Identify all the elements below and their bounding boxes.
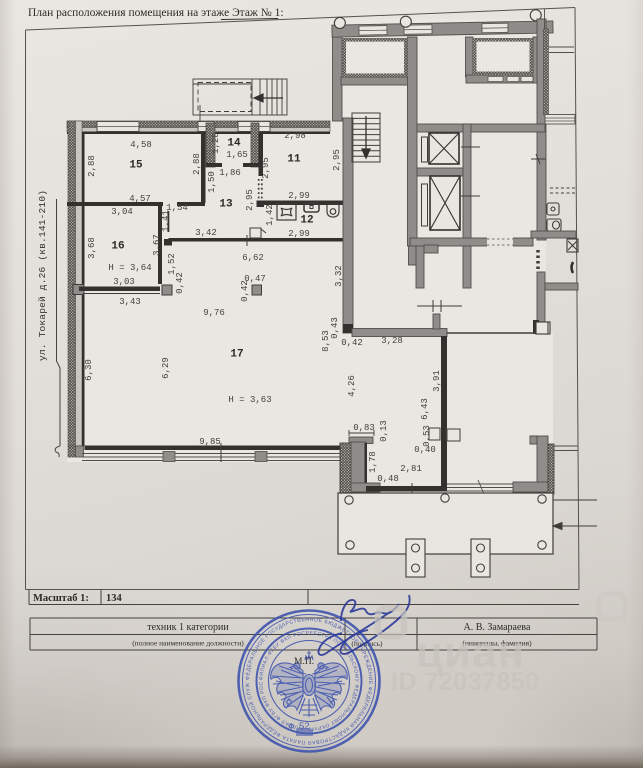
svg-text:0,13: 0,13 bbox=[379, 420, 389, 442]
svg-text:0,83: 0,83 bbox=[353, 423, 375, 433]
svg-text:Н = 3,64: Н = 3,64 bbox=[108, 263, 151, 273]
svg-text:2,99: 2,99 bbox=[288, 191, 310, 201]
svg-text:4,57: 4,57 bbox=[129, 194, 151, 204]
svg-text:9,85: 9,85 bbox=[199, 437, 221, 447]
svg-text:0,43: 0,43 bbox=[330, 317, 340, 339]
svg-text:15: 15 bbox=[129, 160, 143, 172]
svg-text:2,95: 2,95 bbox=[261, 157, 271, 179]
svg-text:1,28: 1,28 bbox=[211, 132, 221, 154]
svg-text:1,41: 1,41 bbox=[161, 210, 171, 232]
svg-text:1,78: 1,78 bbox=[368, 451, 378, 473]
svg-text:1,52: 1,52 bbox=[167, 253, 177, 275]
svg-text:3,32: 3,32 bbox=[334, 265, 344, 287]
svg-text:0,48: 0,48 bbox=[377, 474, 399, 484]
svg-text:Н = 3,63: Н = 3,63 bbox=[228, 395, 271, 405]
svg-text:2,98: 2,98 bbox=[284, 131, 306, 141]
svg-text:0,53: 0,53 bbox=[422, 425, 432, 447]
svg-text:ул. Токарей д.26 (кв.141-210): ул. Токарей д.26 (кв.141-210) bbox=[37, 190, 48, 361]
svg-text:3,04: 3,04 bbox=[111, 207, 133, 217]
svg-text:1,50: 1,50 bbox=[207, 171, 217, 193]
svg-text:9,76: 9,76 bbox=[203, 308, 225, 318]
svg-text:3,91: 3,91 bbox=[432, 370, 442, 392]
svg-text:134: 134 bbox=[106, 593, 123, 604]
svg-text:1,86: 1,86 bbox=[219, 168, 241, 178]
svg-text:6,43: 6,43 bbox=[420, 398, 430, 420]
svg-text:2,99: 2,99 bbox=[288, 229, 310, 239]
svg-text:6,29: 6,29 bbox=[161, 357, 171, 379]
svg-text:12: 12 bbox=[300, 215, 313, 227]
svg-text:(полное наименование должности: (полное наименование должности) bbox=[132, 639, 244, 648]
svg-text:4,26: 4,26 bbox=[347, 375, 357, 397]
svg-text:0,42: 0,42 bbox=[341, 338, 363, 348]
svg-text:14: 14 bbox=[227, 138, 241, 150]
svg-text:3,67: 3,67 bbox=[152, 234, 162, 256]
svg-text:2,88: 2,88 bbox=[87, 155, 97, 177]
svg-text:6,62: 6,62 bbox=[242, 253, 264, 263]
svg-text:3,42: 3,42 bbox=[195, 228, 217, 238]
svg-text:3,28: 3,28 bbox=[381, 336, 403, 346]
svg-text:4,58: 4,58 bbox=[130, 140, 152, 150]
svg-text:17: 17 bbox=[230, 349, 243, 361]
svg-text:16: 16 bbox=[111, 241, 124, 253]
svg-text:13: 13 bbox=[219, 199, 233, 211]
svg-text:3,03: 3,03 bbox=[113, 277, 135, 287]
svg-text:техник 1 категории: техник 1 категории bbox=[147, 622, 229, 633]
svg-text:3,43: 3,43 bbox=[119, 297, 141, 307]
svg-text:План расположения помещения на: План расположения помещения на этаже Эта… bbox=[28, 7, 284, 19]
svg-text:0,42: 0,42 bbox=[240, 280, 250, 302]
svg-text:Ф: Ф bbox=[288, 721, 294, 731]
svg-text:1,42: 1,42 bbox=[265, 204, 275, 226]
svg-text:М.П.: М.П. bbox=[294, 657, 314, 667]
svg-text:2,95: 2,95 bbox=[332, 149, 342, 171]
svg-text:2,95: 2,95 bbox=[245, 189, 255, 211]
svg-text:Масштаб 1:: Масштаб 1: bbox=[33, 593, 89, 604]
svg-text:0,42: 0,42 bbox=[175, 272, 185, 294]
svg-text:11: 11 bbox=[287, 154, 301, 166]
svg-text:2,81: 2,81 bbox=[400, 464, 422, 474]
svg-text:6,30: 6,30 bbox=[84, 359, 94, 381]
svg-text:ID 72037850: ID 72037850 bbox=[391, 668, 540, 696]
svg-text:2,88: 2,88 bbox=[192, 153, 202, 175]
svg-text:1,65: 1,65 bbox=[226, 150, 248, 160]
svg-text:3,68: 3,68 bbox=[87, 237, 97, 259]
